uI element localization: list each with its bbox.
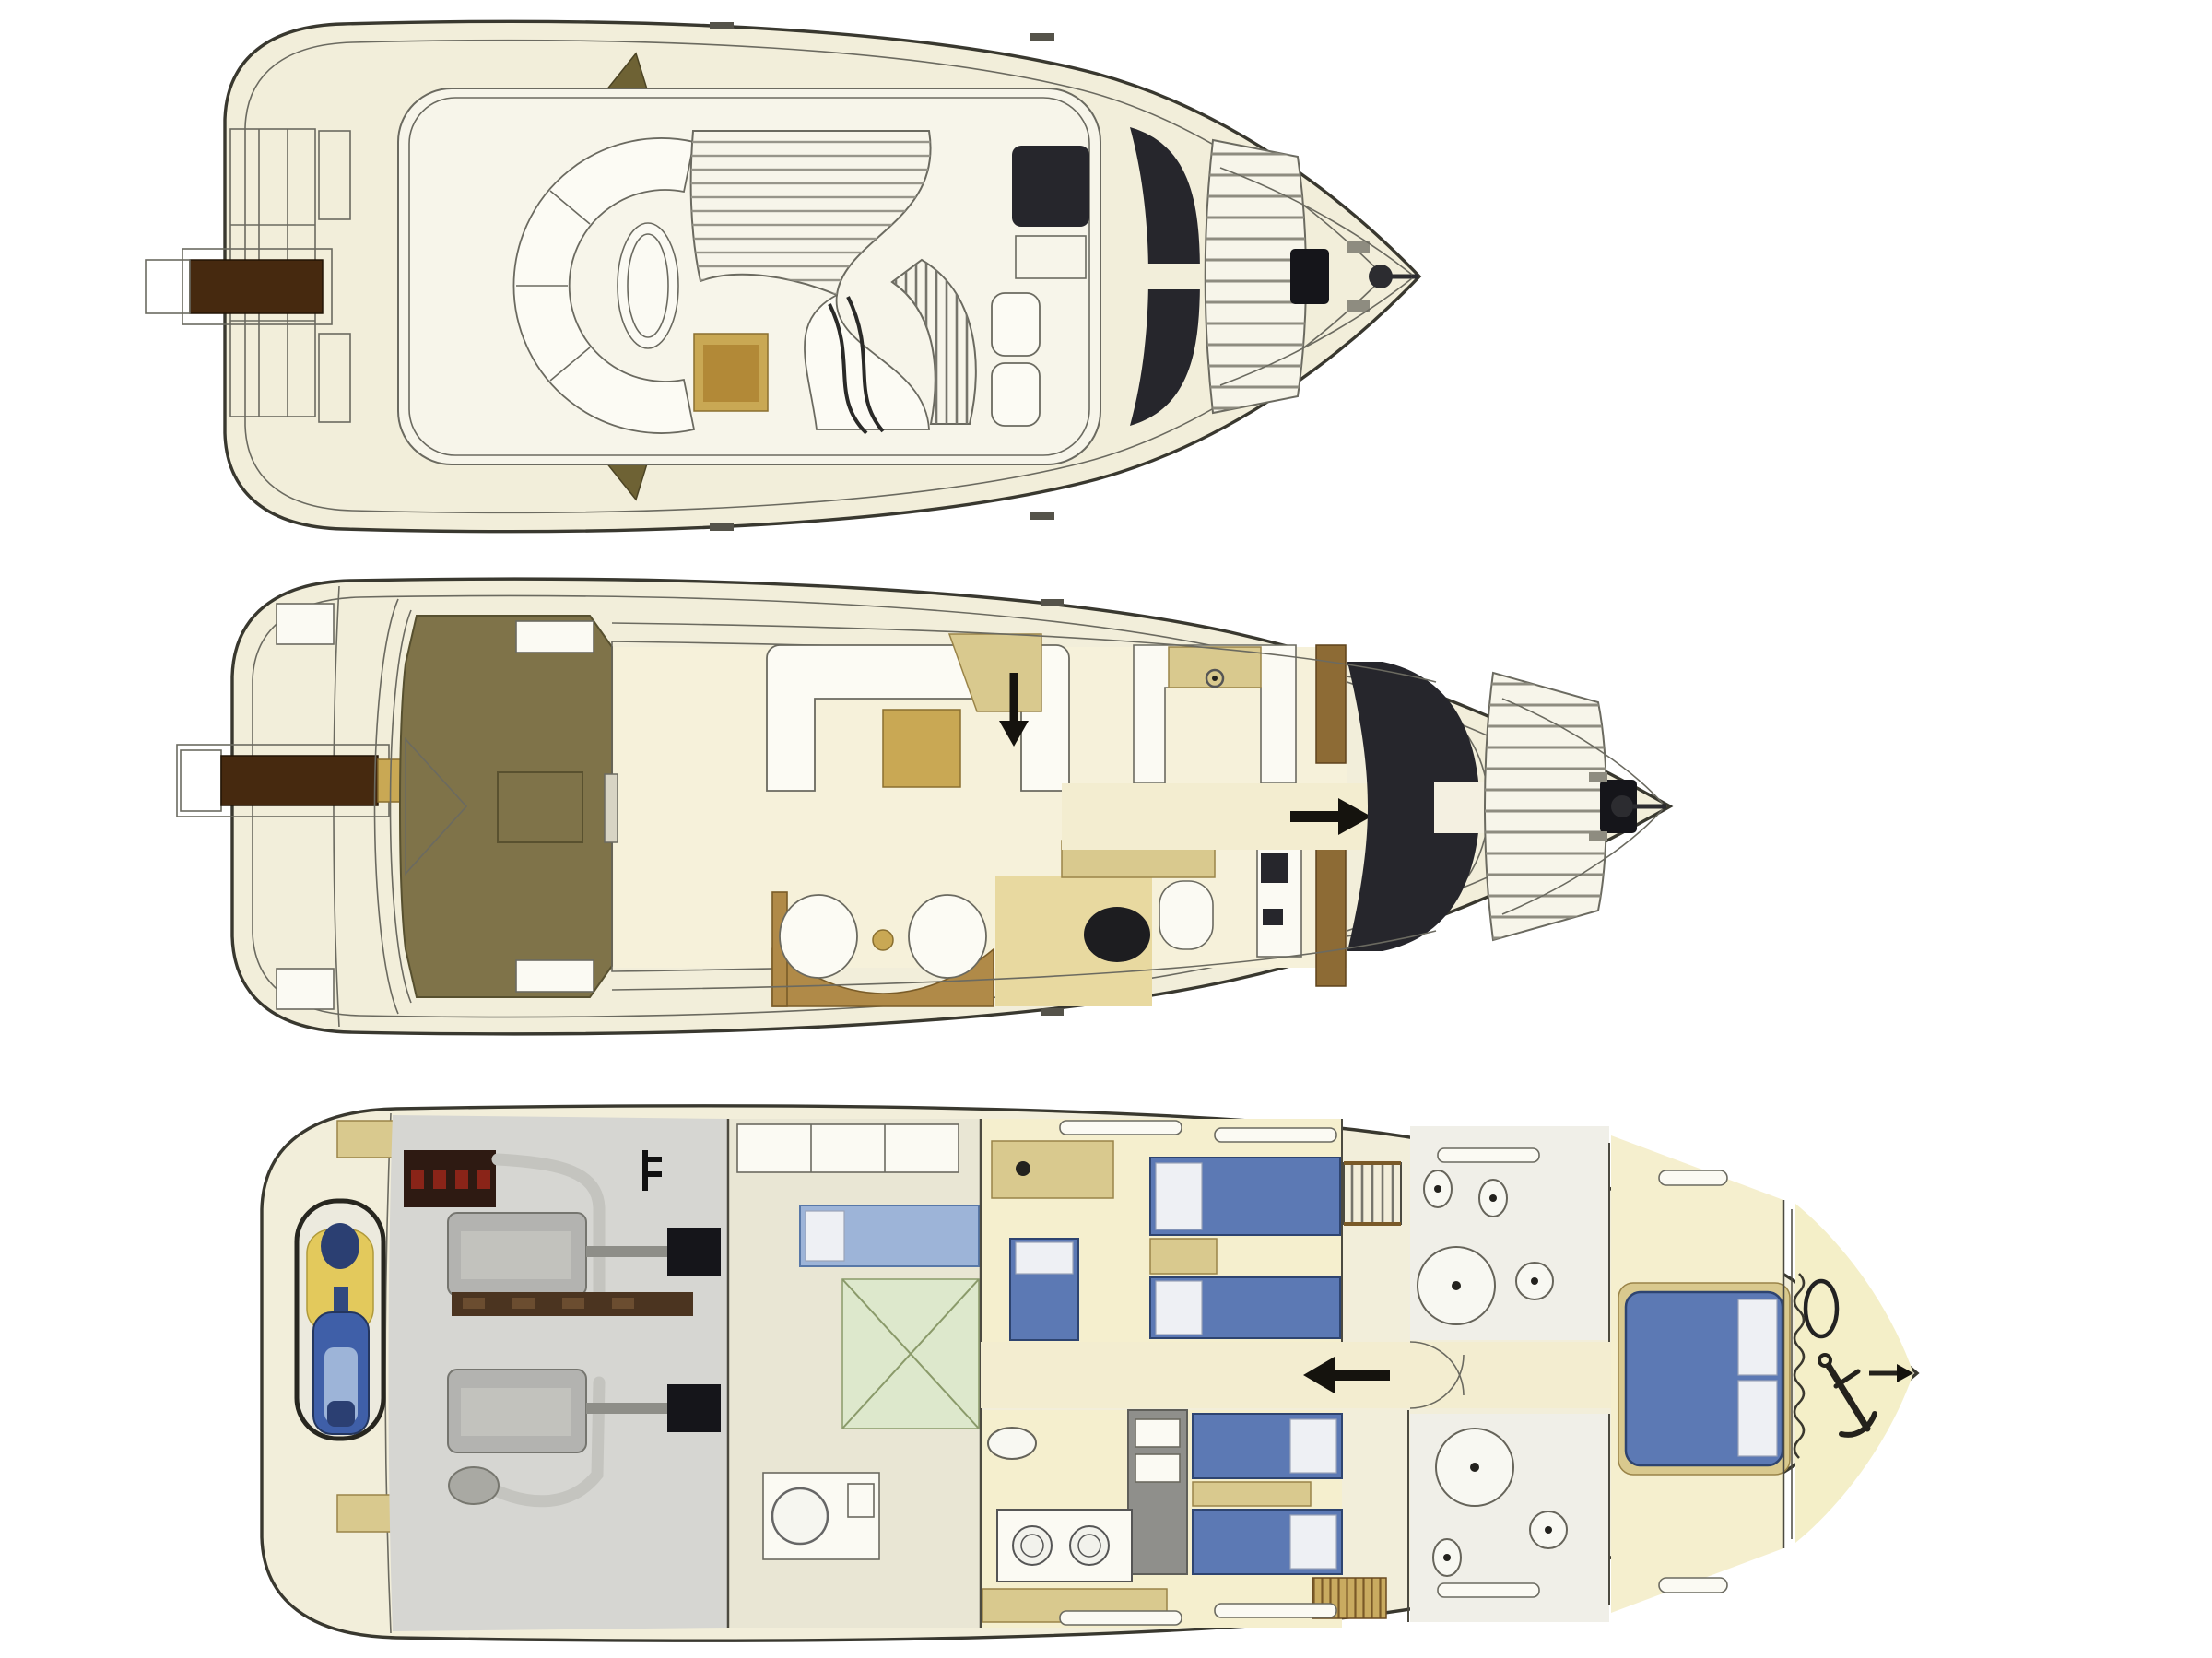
galley-fridge xyxy=(1257,848,1301,957)
vanity xyxy=(992,1141,1113,1198)
stove xyxy=(997,1510,1132,1582)
battery-bank xyxy=(404,1150,496,1207)
vip-side-window-port xyxy=(1659,1170,1727,1185)
flybridge-table xyxy=(618,223,678,348)
main-foredeck-sunpad xyxy=(1485,673,1606,940)
muffler xyxy=(449,1467,499,1504)
washer-unit xyxy=(763,1473,879,1559)
stern-step-starboard xyxy=(337,1495,396,1532)
gearbox-port xyxy=(667,1228,721,1276)
lower-deck-plan xyxy=(262,1106,1917,1640)
guest-cabin-port xyxy=(982,1119,1342,1342)
swim-step-port xyxy=(276,604,334,644)
lower-galley xyxy=(982,1410,1189,1628)
crew-quarters xyxy=(730,1119,981,1628)
helm-seat-starboard xyxy=(992,363,1040,426)
cockpit-locker-port xyxy=(516,621,594,653)
yacht-deck-plans-page xyxy=(0,0,2212,1658)
tender-garage xyxy=(297,1201,383,1439)
helm-chair xyxy=(1084,907,1150,962)
foredeck-hatch xyxy=(1290,249,1329,304)
sliding-door xyxy=(605,774,618,842)
flybridge-wetbar xyxy=(694,334,768,411)
deck-plan-drawing xyxy=(0,0,2212,1658)
crew-berth-green xyxy=(842,1279,979,1429)
gearbox-starboard xyxy=(667,1384,721,1432)
passerelle-gangway xyxy=(146,249,332,324)
stern-step-port xyxy=(337,1121,396,1158)
swim-step-starboard xyxy=(276,969,334,1009)
helm-seat-port xyxy=(992,293,1040,356)
galley-sink xyxy=(988,1428,1036,1459)
forepeak-chain-locker xyxy=(1794,1204,1913,1543)
cockpit-locker-starboard xyxy=(516,960,594,992)
windscreen-walkthrough xyxy=(1123,264,1207,289)
engine-port xyxy=(448,1213,721,1316)
lower-deck-stairs xyxy=(1344,1163,1401,1224)
vip-cabin xyxy=(1611,1135,1792,1613)
salon-coffee-table xyxy=(883,710,960,787)
nightstand xyxy=(1150,1239,1217,1274)
flybridge-deck-plan xyxy=(146,21,1419,531)
aft-cockpit-teak xyxy=(400,616,612,997)
main-deck-plan xyxy=(177,579,1670,1034)
vip-side-window-starboard xyxy=(1659,1578,1727,1593)
galley-cabinet-fwd xyxy=(1316,848,1346,986)
jetski-bow xyxy=(321,1223,359,1269)
